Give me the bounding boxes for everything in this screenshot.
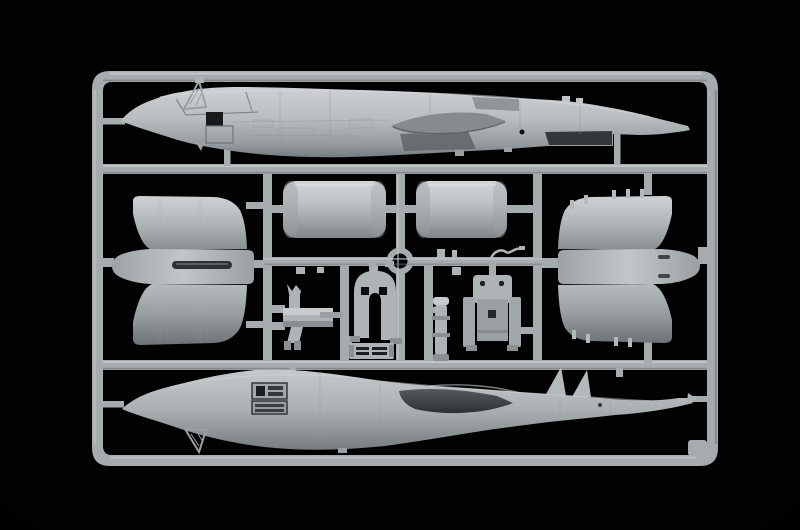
- sprue-photo: [0, 0, 800, 530]
- vignette-overlay: [0, 0, 800, 530]
- photo-canvas: [0, 0, 800, 530]
